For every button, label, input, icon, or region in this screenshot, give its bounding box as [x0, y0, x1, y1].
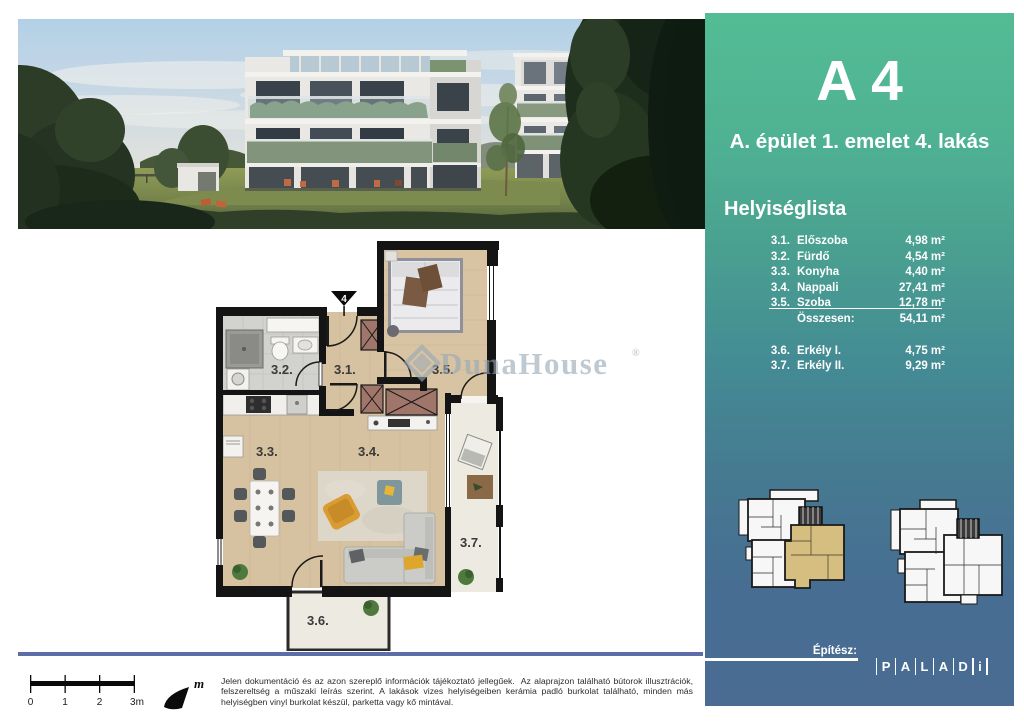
svg-text:3.2.: 3.2. [271, 362, 293, 377]
svg-text:3.3.: 3.3. [256, 444, 278, 459]
svg-text:1: 1 [62, 697, 68, 708]
svg-text:4: 4 [341, 294, 347, 305]
svg-text:3.4.: 3.4. [358, 444, 380, 459]
svg-text:®: ® [632, 348, 640, 359]
svg-text:DunaHouse: DunaHouse [440, 346, 609, 381]
svg-text:3.6.: 3.6. [307, 613, 329, 628]
svg-text:3.1.: 3.1. [334, 362, 356, 377]
svg-text:2: 2 [97, 697, 103, 708]
svg-text:0: 0 [28, 697, 34, 708]
svg-text:m: m [194, 676, 204, 691]
svg-text:3.7.: 3.7. [460, 535, 482, 550]
svg-text:3m: 3m [130, 697, 144, 708]
